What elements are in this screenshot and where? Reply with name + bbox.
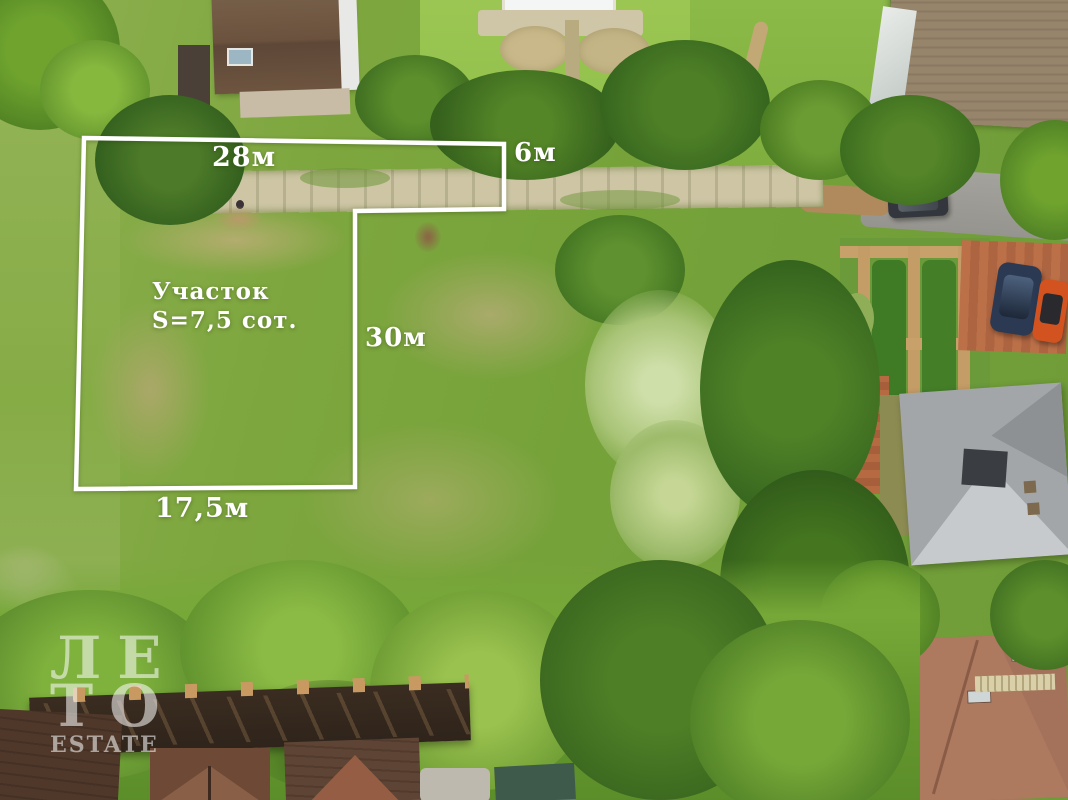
plot-area-label-line1: Участок	[152, 278, 298, 307]
watermark-logo: ЛЕ ТО ESTATE	[50, 634, 178, 756]
dimension-label-side-length: 30м	[365, 323, 427, 353]
dimension-label-entrance-width: 6м	[514, 138, 557, 168]
watermark-estate-text: ESTATE	[50, 734, 178, 756]
plot-area-label-line2: S=7,5 сот.	[152, 307, 298, 336]
watermark-line2: ТО	[50, 682, 178, 730]
dimension-label-bottom-width: 17,5м	[155, 493, 249, 524]
aerial-photo-scene: 28м 6м 30м 17,5м Участок S=7,5 сот. ЛЕ Т…	[0, 0, 1068, 800]
dimension-label-top-width: 28м	[212, 142, 276, 173]
plot-area-label: Участок S=7,5 сот.	[152, 278, 298, 336]
